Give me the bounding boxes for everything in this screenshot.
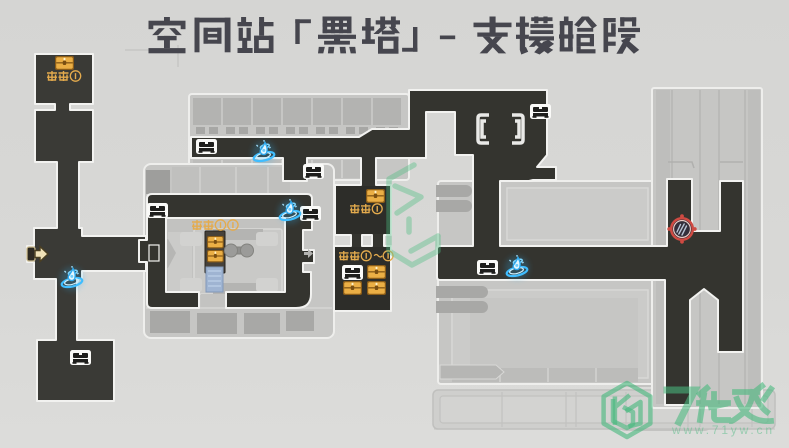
svg-text:www.71yw.cn: www.71yw.cn (671, 423, 772, 437)
